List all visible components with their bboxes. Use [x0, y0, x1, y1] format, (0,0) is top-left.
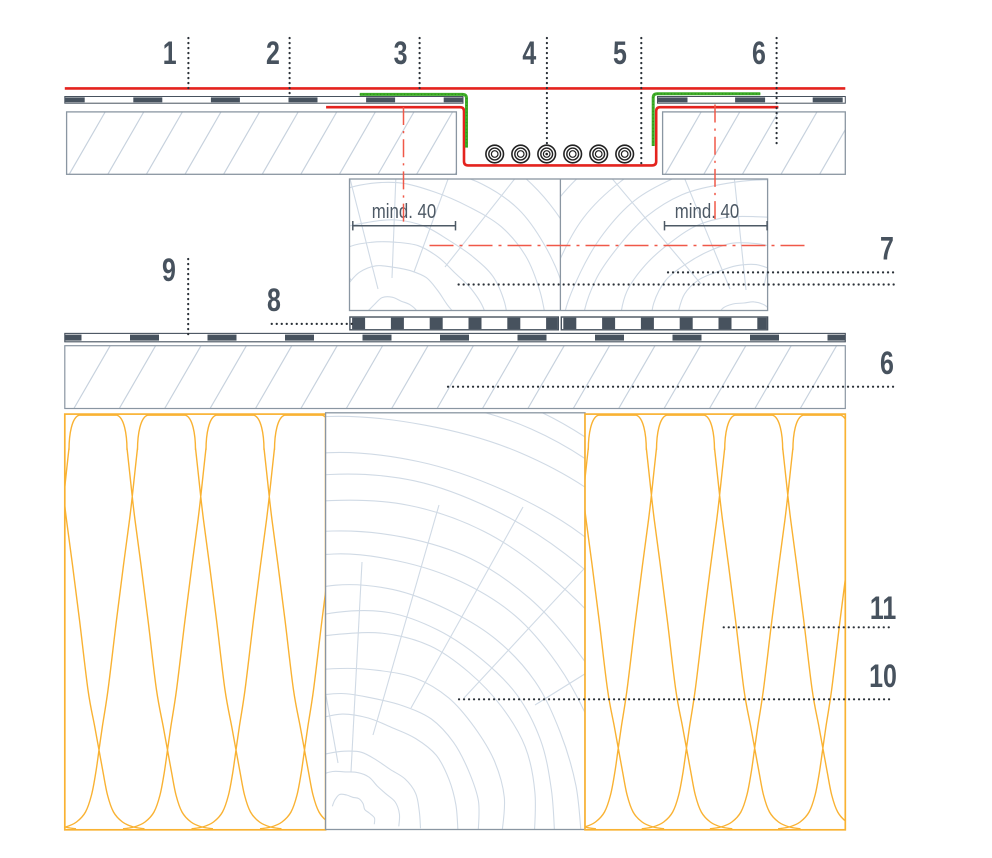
- svg-text:10: 10: [869, 659, 897, 695]
- svg-text:2: 2: [266, 36, 280, 72]
- svg-text:7: 7: [880, 232, 894, 268]
- svg-text:3: 3: [394, 36, 408, 72]
- svg-text:9: 9: [162, 253, 176, 289]
- svg-text:4: 4: [522, 36, 536, 72]
- svg-text:5: 5: [613, 36, 627, 72]
- svg-text:1: 1: [163, 36, 177, 72]
- svg-text:mind. 40: mind. 40: [675, 199, 739, 222]
- svg-text:11: 11: [870, 591, 896, 627]
- svg-text:6: 6: [880, 346, 894, 382]
- svg-text:8: 8: [267, 283, 281, 319]
- svg-text:6: 6: [752, 36, 766, 72]
